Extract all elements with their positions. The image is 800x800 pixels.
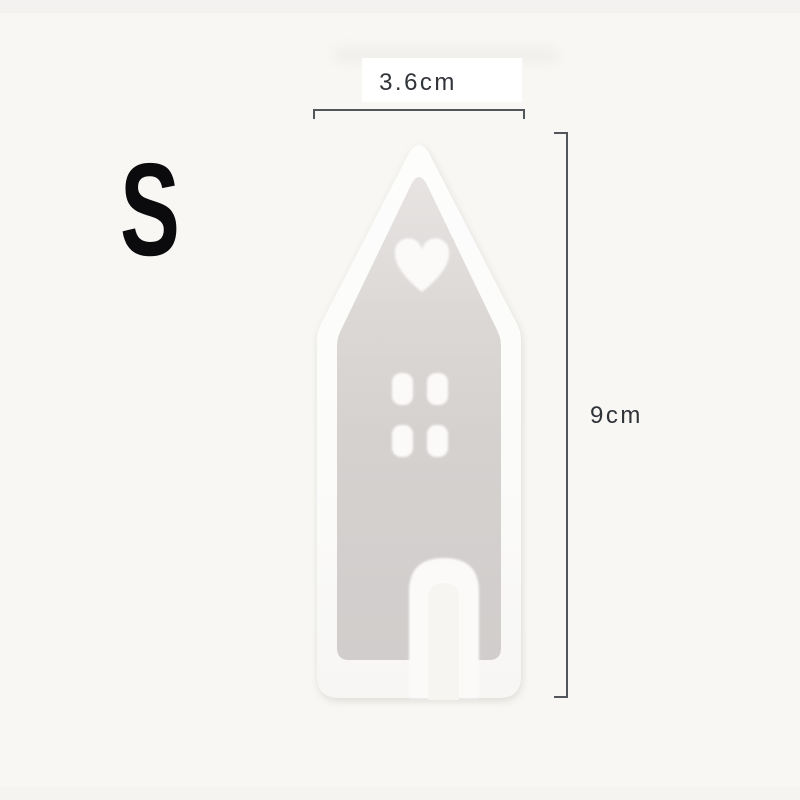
height-value: 9cm <box>590 402 643 430</box>
height-measure-line <box>566 132 568 698</box>
bottom-edge-band <box>0 787 800 800</box>
width-value: 3.6cm <box>310 69 526 97</box>
height-tick-bottom <box>554 696 567 698</box>
size-label: S <box>120 144 180 276</box>
product-image: S 3.6cm 9cm <box>0 0 800 800</box>
door-slot <box>428 583 459 700</box>
width-tick-right <box>523 109 525 119</box>
top-edge-band <box>0 0 800 13</box>
window-hole-top-right <box>427 373 448 405</box>
width-tick-left <box>313 109 315 119</box>
width-measure-line <box>313 109 525 111</box>
window-hole-bottom-left <box>392 425 413 457</box>
height-tick-top <box>554 132 567 134</box>
window-hole-top-left <box>392 373 413 405</box>
window-hole-bottom-right <box>427 425 448 457</box>
house-mold-photo <box>280 128 540 712</box>
